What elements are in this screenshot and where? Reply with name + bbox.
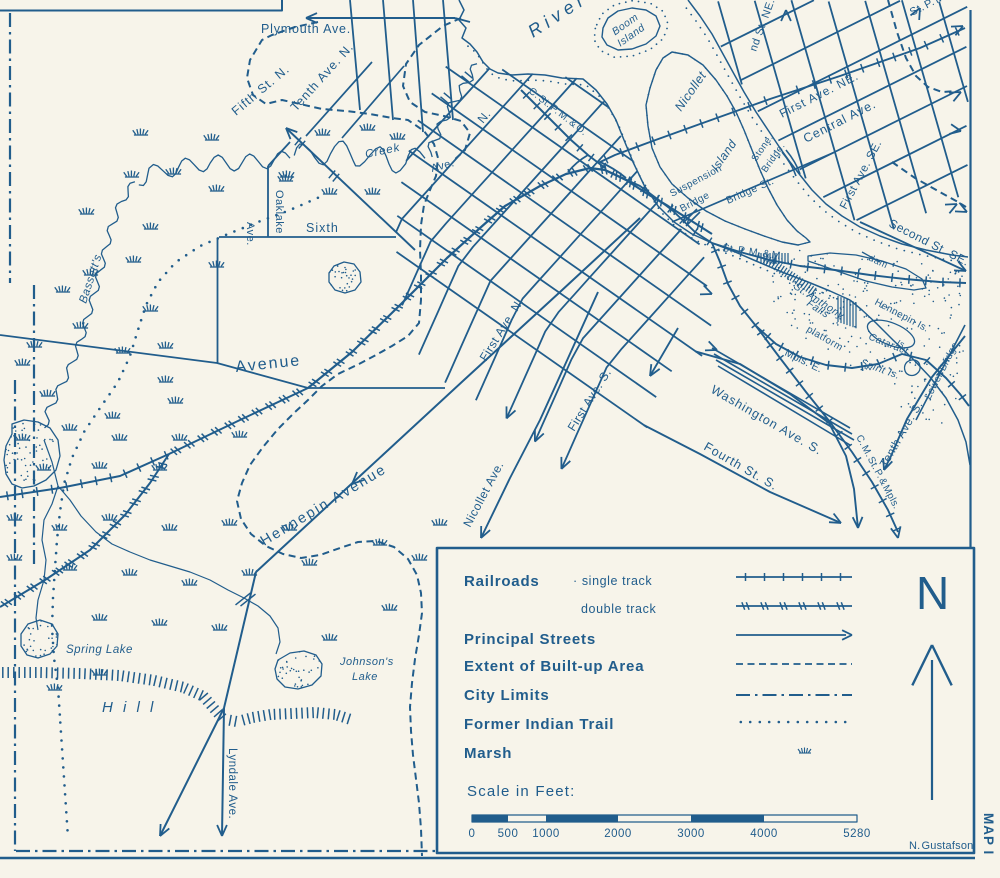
svg-text:H i l l: H i l l	[102, 699, 156, 716]
svg-text:5280: 5280	[843, 828, 871, 840]
svg-text:Railroads: Railroads	[464, 573, 540, 590]
svg-text:2000: 2000	[604, 828, 632, 840]
svg-text:Spring Lake: Spring Lake	[66, 644, 133, 656]
svg-text:Ave.: Ave.	[244, 222, 256, 246]
svg-text:· single track: · single track	[573, 574, 652, 588]
svg-text:N: N	[916, 567, 949, 619]
svg-text:Former Indian Trail: Former Indian Trail	[464, 716, 614, 733]
svg-text:Principal Streets: Principal Streets	[464, 631, 596, 648]
svg-text:MAP I: MAP I	[981, 813, 996, 855]
svg-text:Plymouth Ave.: Plymouth Ave.	[261, 22, 351, 36]
svg-text:Lake: Lake	[352, 671, 378, 683]
svg-text:Johnson's: Johnson's	[339, 656, 394, 668]
svg-text:4000: 4000	[750, 828, 778, 840]
svg-text:City Limits: City Limits	[464, 687, 549, 704]
svg-text:Sixth: Sixth	[306, 221, 339, 235]
svg-text:3000: 3000	[677, 828, 705, 840]
svg-text:500: 500	[498, 828, 519, 840]
svg-text:0: 0	[469, 828, 476, 840]
svg-text:1000: 1000	[532, 828, 560, 840]
svg-text:Scale in Feet:: Scale in Feet:	[467, 783, 576, 800]
svg-text:Lyndale Ave.: Lyndale Ave.	[226, 748, 238, 819]
svg-text:Oaklake: Oaklake	[273, 190, 285, 234]
svg-text:Marsh: Marsh	[464, 745, 512, 762]
svg-text:double track: double track	[581, 602, 656, 616]
svg-text:Extent of Built-up Area: Extent of Built-up Area	[464, 658, 644, 675]
svg-text:N. Gustafson: N. Gustafson	[909, 840, 973, 852]
